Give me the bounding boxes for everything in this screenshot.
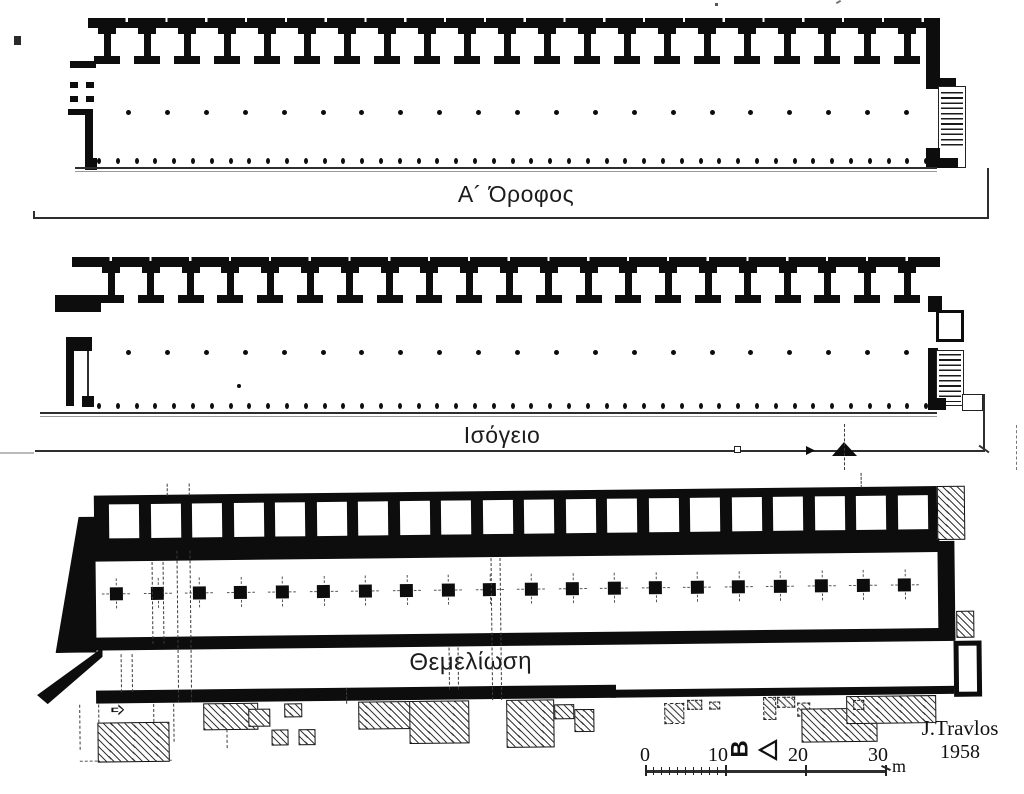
column-footing: [358, 584, 371, 597]
footing-axis-dash: [199, 577, 200, 584]
north-letter: Β: [727, 740, 755, 757]
footing-axis-dash: [323, 599, 324, 606]
column-footing: [649, 581, 662, 594]
survey-dash-line: [861, 473, 862, 488]
ruin-fragment: [554, 704, 574, 719]
footing-axis-dash: [600, 588, 607, 589]
footing-axis-dash: [455, 589, 462, 590]
ruin-fragment: [777, 697, 795, 708]
footing-axis-dash: [531, 574, 532, 581]
footing-axis-dash: [372, 590, 379, 591]
ruin-fragment: [298, 729, 315, 745]
footing-axis-dash: [102, 593, 109, 594]
column-footing: [566, 582, 579, 595]
foundation-room-cell: [441, 500, 471, 534]
scale-major-tick: [645, 765, 647, 776]
footing-axis-dash: [517, 589, 524, 590]
foundation-room-cell: [607, 498, 637, 532]
footing-axis-dash: [406, 598, 407, 605]
footing-axis-dash: [870, 585, 877, 586]
later-wall-patch: [956, 611, 974, 638]
footing-axis-dash: [614, 596, 615, 603]
scale-minor-tick: [701, 767, 702, 775]
survey-dash-line: [167, 484, 168, 496]
footing-axis-dash: [849, 585, 856, 586]
column-footing: [483, 583, 496, 596]
footing-axis-dash: [531, 597, 532, 604]
survey-dash-line: [132, 654, 133, 692]
ruin-fragment: [284, 703, 302, 717]
credit-year: 1958: [900, 741, 1020, 764]
foundation-room-cell: [731, 497, 761, 531]
ruin-fragment: [409, 700, 469, 744]
footing-axis-dash: [662, 587, 669, 588]
footing-axis-dash: [863, 570, 864, 577]
footing-axis-dash: [240, 600, 241, 607]
footing-axis-dash: [621, 588, 628, 589]
foundation-room-cell: [233, 503, 263, 537]
foundation-label: Θεμελίωση: [359, 647, 583, 678]
column-footing: [441, 583, 454, 596]
foundation-room-cell: [565, 499, 595, 533]
scan-speck: [14, 36, 21, 45]
scale-minor-tick: [717, 767, 718, 775]
footing-axis-dash: [641, 587, 648, 588]
footing-axis-dash: [392, 590, 399, 591]
foundation-room-cell: [275, 502, 305, 536]
footing-axis-dash: [226, 592, 233, 593]
footing-axis-dash: [821, 570, 822, 577]
foundation-room-cell: [524, 499, 554, 533]
footing-axis-dash: [780, 571, 781, 578]
footing-axis-dash: [199, 600, 200, 607]
foundation-room-cell: [690, 497, 720, 531]
ruin-fragment: [763, 697, 776, 720]
footing-axis-dash: [116, 601, 117, 608]
column-footing: [400, 583, 413, 596]
footing-axis-dash: [309, 591, 316, 592]
footing-axis-dash: [738, 571, 739, 578]
travlos-stoa-plans-drawing: Α´ Όροφος Ισόγειο: [0, 0, 1024, 794]
footing-axis-dash: [330, 591, 337, 592]
footing-axis-dash: [904, 569, 905, 576]
column-footing: [192, 586, 205, 599]
footing-axis-dash: [475, 589, 482, 590]
scale-major-tick: [805, 765, 807, 776]
terrace-foundation-taper: [37, 647, 104, 705]
scale-minor-tick: [669, 767, 670, 775]
column-footing: [275, 585, 288, 598]
survey-dash-line: [189, 484, 190, 496]
survey-dash-line: [346, 688, 347, 704]
footing-axis-dash: [365, 576, 366, 583]
footing-axis-dash: [655, 595, 656, 602]
footing-axis-dash: [406, 575, 407, 582]
column-footing: [234, 585, 247, 598]
survey-dash-line: [121, 654, 122, 692]
footing-axis-dash: [745, 586, 752, 587]
footing-axis-dash: [655, 572, 656, 579]
footing-axis-dash: [206, 592, 213, 593]
footing-axis-dash: [282, 576, 283, 583]
footing-axis-dash: [157, 578, 158, 585]
footing-axis-dash: [448, 598, 449, 605]
foundation-room-cell: [109, 504, 139, 538]
footing-axis-dash: [780, 594, 781, 601]
ruin-fragment: [574, 709, 594, 732]
foundation-room-cell: [316, 502, 346, 536]
ruin-fragment: [271, 729, 288, 745]
column-footing: [773, 579, 786, 592]
column-footing: [690, 580, 703, 593]
footing-axis-dash: [863, 593, 864, 600]
footing-axis-dash: [351, 591, 358, 592]
footing-axis-dash: [683, 587, 690, 588]
scale-minor-tick: [661, 767, 662, 775]
footing-axis-dash: [558, 588, 565, 589]
footing-axis-dash: [766, 586, 773, 587]
footing-axis-dash: [697, 572, 698, 579]
footing-axis-dash: [289, 591, 296, 592]
foundation-room-cell: [358, 501, 388, 535]
credit-block: J.Travlos 1958: [900, 716, 1020, 772]
foundation-room-cell: [192, 503, 222, 537]
ruin-fragment: [687, 700, 702, 710]
footing-axis-dash: [268, 592, 275, 593]
footing-axis-dash: [538, 588, 545, 589]
scale-minor-tick: [685, 767, 686, 775]
scale-minor-tick: [653, 767, 654, 775]
foundation-room-cell: [856, 496, 886, 530]
footing-axis-dash: [365, 599, 366, 606]
north-arrow-icon: [756, 739, 780, 761]
footing-axis-dash: [164, 593, 171, 594]
footing-axis-dash: [787, 586, 794, 587]
footing-axis-dash: [704, 587, 711, 588]
foundation-room-cell: [150, 504, 180, 538]
footing-axis-dash: [579, 588, 586, 589]
scale-minor-tick: [709, 767, 710, 775]
footing-axis-dash: [807, 585, 814, 586]
column-footing: [856, 578, 869, 591]
footing-axis-dash: [282, 599, 283, 606]
footing-axis-dash: [247, 592, 254, 593]
footing-axis-dash: [904, 592, 905, 599]
foundation-room-cell: [482, 500, 512, 534]
footing-axis-dash: [911, 584, 918, 585]
foundation-hall-interior: [96, 552, 939, 638]
plan-foundation: Θεμελίωση: [0, 0, 1024, 794]
footing-axis-dash: [821, 593, 822, 600]
column-footing: [109, 587, 122, 600]
terrace-corner-foundation: [953, 641, 982, 697]
footing-axis-dash: [123, 593, 130, 594]
footing-axis-dash: [157, 601, 158, 608]
footing-axis-dash: [572, 573, 573, 580]
foundation-room-cell: [648, 498, 678, 532]
survey-dash-line: [173, 704, 174, 742]
footing-axis-dash: [614, 573, 615, 580]
footing-axis-dash: [828, 585, 835, 586]
column-footing: [898, 578, 911, 591]
footing-axis-dash: [434, 590, 441, 591]
footing-axis-dash: [143, 593, 150, 594]
foundation-room-cell: [399, 501, 429, 535]
column-footing: [815, 579, 828, 592]
foundation-room-cell: [814, 496, 844, 530]
north-indicator: Β: [726, 732, 786, 768]
footing-axis-dash: [572, 596, 573, 603]
footing-axis-dash: [413, 590, 420, 591]
later-wall-patch: [937, 486, 966, 540]
footing-axis-dash: [890, 584, 897, 585]
ruin-fragment: [506, 699, 555, 748]
foundation-room-cell: [773, 497, 803, 531]
footing-axis-dash: [116, 578, 117, 585]
footing-axis-dash: [697, 595, 698, 602]
ruin-fragment: [664, 703, 684, 724]
credit-author: J.Travlos: [900, 716, 1020, 741]
footing-axis-dash: [738, 594, 739, 601]
column-footing: [732, 580, 745, 593]
survey-dash-line: [79, 705, 81, 750]
column-footing: [524, 582, 537, 595]
footing-axis-dash: [240, 577, 241, 584]
foundation-room-cell: [897, 495, 927, 529]
column-footing: [607, 581, 620, 594]
footing-axis-dash: [323, 576, 324, 583]
footing-axis-dash: [448, 575, 449, 582]
scale-minor-tick: [677, 767, 678, 775]
ruin-fragment: [248, 709, 270, 727]
ruin-fragment: [853, 700, 864, 710]
column-footing: [317, 584, 330, 597]
scale-minor-tick: [693, 767, 694, 775]
ruin-fragment: [709, 702, 720, 710]
ruin-fragment: [97, 722, 169, 763]
footing-axis-dash: [724, 586, 731, 587]
scan-speck: [715, 3, 718, 6]
